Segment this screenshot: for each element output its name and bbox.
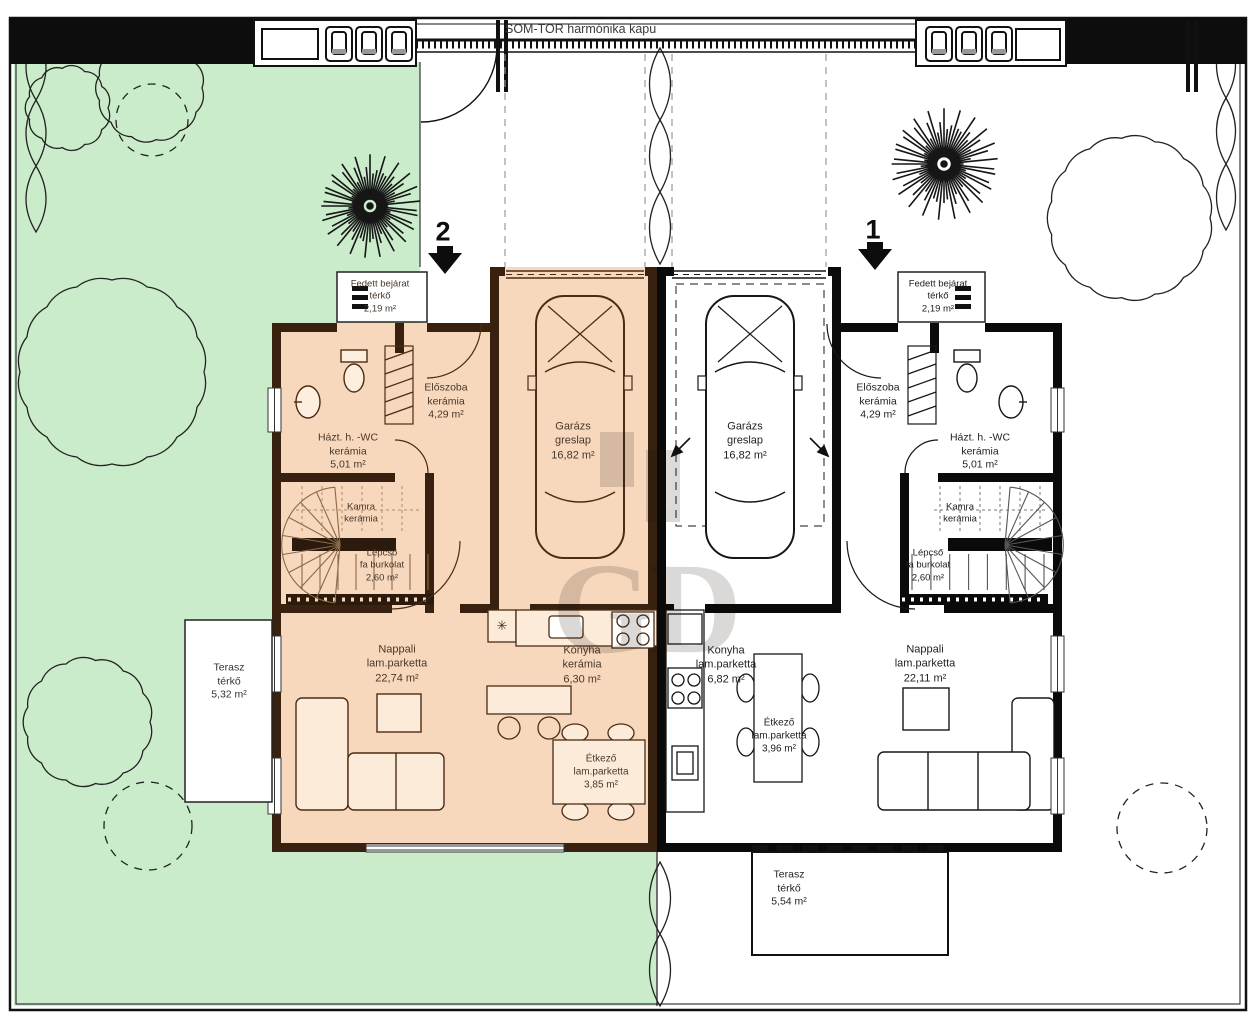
room-name: Házt. h. -WC [950,432,1010,446]
room-area: 2,60 m² [360,572,404,584]
label-nappali-unit2: Nappali lam.parketta 22,74 m² [367,643,428,686]
room-area: 2,19 m² [351,303,410,315]
label-eloszoba-unit2: Előszoba kerámia 4,29 m² [424,382,467,423]
room-name: Garázs [551,420,594,434]
room-name: Kamra [344,502,378,514]
floor-plan: G D SOM-TOR harmónika kapu 2 1 Fedett be… [0,0,1256,1024]
room-name: Nappali [895,643,956,657]
room-name: Terasz [211,662,247,676]
label-eloszoba-unit1: Előszoba kerámia 4,29 m² [856,382,899,423]
room-material: greslap [551,434,594,448]
room-material: térkő [771,882,807,896]
room-area: 6,30 m² [562,672,601,686]
label-garazs-unit2: Garázs greslap 16,82 m² [551,420,594,463]
room-area: 22,11 m² [895,671,956,685]
room-material: lam.parketta [751,730,806,743]
room-name: Étkező [573,753,628,766]
room-area: 5,32 m² [211,689,247,703]
label-kamra-unit1: Kamra kerámia [943,502,977,527]
room-name: Kamra [943,502,977,514]
label-nappali-unit1: Nappali lam.parketta 22,11 m² [895,643,956,686]
cloud-tree [1047,136,1211,301]
label-lepcso-unit2: Lépcső fa burkolat 2,60 m² [360,547,404,584]
label-entry-unit2: Fedett bejárat térkő 2,19 m² [351,278,410,315]
room-material: kerámia [344,514,378,526]
room-area: 5,54 m² [771,896,807,910]
room-name: Lépcső [906,547,950,559]
room-area: 3,96 m² [751,743,806,756]
label-entry-unit1: Fedett bejárat térkő 2,19 m² [909,278,968,315]
room-name: Előszoba [424,382,467,396]
dashed-shrub [1117,783,1207,873]
bin-storage-right [916,20,1066,66]
label-terasz-unit1: Terasz térkő 5,54 m² [771,869,807,910]
label-konyha-unit1: Konyha lam.parketta 6,82 m² [696,644,757,687]
chair-icon [608,802,634,820]
label-kamra-unit2: Kamra kerámia [344,502,378,527]
room-area: 22,74 m² [367,671,428,685]
label-konyha-unit2: Konyha kerámia 6,30 m² [562,644,601,687]
bin-storage-left [254,20,416,66]
room-area: 16,82 m² [723,448,766,462]
room-area: 5,01 m² [318,459,378,473]
gate-post [1186,20,1190,92]
toilet-icon [341,350,367,362]
room-material: kerámia [424,395,467,409]
room-name: Étkező [751,717,806,730]
room-material: térkő [211,675,247,689]
room-name: Garázs [723,420,766,434]
room-area: 5,01 m² [950,459,1010,473]
room-material: lam.parketta [573,766,628,779]
label-etkezo-unit1: Étkező lam.parketta 3,96 m² [751,717,806,756]
room-area: 3,85 m² [573,779,628,792]
room-name: Fedett bejárat [909,278,968,290]
room-area: 2,19 m² [909,303,968,315]
dense-tree [892,108,998,220]
fence-wall-right [1066,18,1246,64]
kitchen-island [487,686,571,714]
chair-icon [608,724,634,742]
room-area: 2,60 m² [906,572,950,584]
room-name: Konyha [696,644,757,658]
chair-icon [562,802,588,820]
toilet-icon [344,364,364,392]
sofa-icon [296,698,348,810]
room-name: Fedett bejárat [351,278,410,290]
room-name: Házt. h. -WC [318,432,378,446]
room-area: 6,82 m² [696,672,757,686]
room-name: Lépcső [360,547,404,559]
gate-post [1194,20,1198,92]
toilet-icon [957,364,977,392]
label-wc-unit1: Házt. h. -WC kerámia 5,01 m² [950,432,1010,473]
cypress-tree [650,48,671,264]
room-material: lam.parketta [696,658,757,672]
label-wc-unit2: Házt. h. -WC kerámia 5,01 m² [318,432,378,473]
coffee-table [903,688,949,730]
sofa-icon [878,752,1030,810]
room-area: 4,29 m² [424,409,467,423]
room-name: Terasz [771,869,807,883]
coffee-table [377,694,421,732]
room-material: térkő [351,291,410,303]
room-material: lam.parketta [895,657,956,671]
room-area: 4,29 m² [856,409,899,423]
label-lepcso-unit1: Lépcső fa burkolat 2,60 m² [906,547,950,584]
room-material: kerámia [856,395,899,409]
room-name: Előszoba [856,382,899,396]
gate-door-swing [421,46,497,122]
room-material: térkő [909,291,968,303]
room-name: Konyha [562,644,601,658]
terrace-unit2 [185,620,272,802]
chair-icon [562,724,588,742]
room-material: greslap [723,434,766,448]
room-material: kerámia [943,514,977,526]
chair-icon [801,674,819,702]
label-garazs-unit1: Garázs greslap 16,82 m² [723,420,766,463]
driveway-guides [505,54,826,267]
sink-icon [672,746,698,780]
unit1-number: 1 [865,215,880,246]
room-material: fa burkolat [906,560,950,572]
room-material: kerámia [562,658,601,672]
room-material: lam.parketta [367,657,428,671]
plan-canvas: G D [0,0,1256,1024]
room-material: kerámia [318,445,378,459]
room-material: kerámia [950,445,1010,459]
label-terasz-unit2: Terasz térkő 5,32 m² [211,662,247,703]
toilet-icon [954,350,980,362]
label-etkezo-unit2: Étkező lam.parketta 3,85 m² [573,753,628,792]
gate-title: SOM-TOR harmónika kapu [505,22,656,36]
boiler-symbol-unit2: ✳ [497,618,508,634]
room-material: fa burkolat [360,560,404,572]
fence-wall-left [10,18,256,64]
room-name: Nappali [367,643,428,657]
unit2-number: 2 [435,217,450,248]
room-area: 16,82 m² [551,448,594,462]
